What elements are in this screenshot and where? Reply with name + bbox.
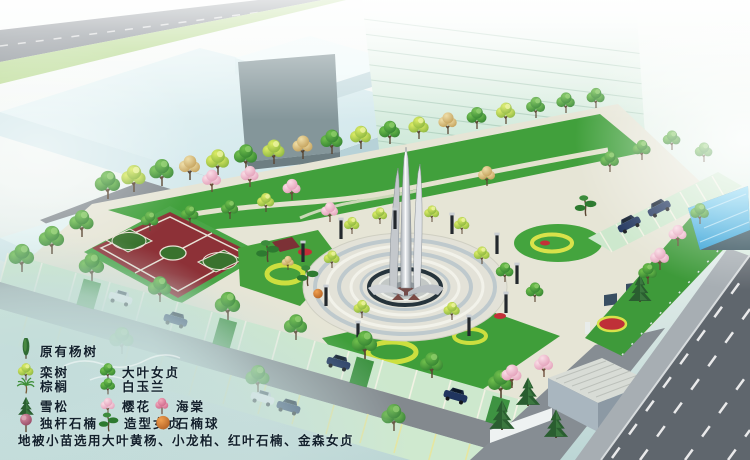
site-rendering-canvas — [0, 0, 750, 460]
landscape-rendering: 原有杨树 栾树 大叶女贞 棕榈 白玉兰 雪松 樱花 — [0, 0, 750, 460]
east-oval-lawn — [514, 224, 602, 262]
